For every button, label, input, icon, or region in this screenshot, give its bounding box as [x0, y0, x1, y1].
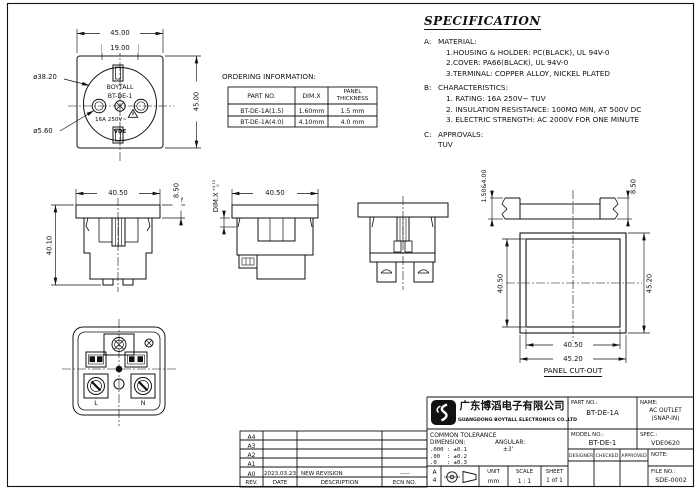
panel-cutout-caption: PANEL CUT-OUT: [544, 366, 603, 377]
dim-panel-thickness: 1.50&4.00: [480, 164, 490, 208]
scale-value: 1 : 1: [508, 477, 541, 486]
side-view-2: [232, 205, 318, 279]
name-value-line2: (SNAP-IN): [637, 415, 694, 424]
spec-item: 1.HOUSING & HOLDER: PC(BLACK), UL 94V-0: [446, 48, 696, 59]
dim-side1-width: 40.50: [97, 189, 139, 198]
company-logo-icon: [431, 400, 456, 425]
ordering-col-dimx: DIM.X: [295, 92, 328, 101]
spec-value: VDE0620: [637, 439, 694, 448]
rev-a0-description: NEW REVISION: [301, 470, 381, 479]
unit-value: mm: [479, 477, 508, 486]
terminal-label-live: L: [90, 399, 102, 408]
dim-cutout-right: 45.20: [646, 263, 655, 303]
specification-block: A:MATERIAL: 1.HOUSING & HOLDER: PC(BLACK…: [424, 37, 696, 155]
spec-item: 3. ELECTRIC STRENGTH: AC 2000V FOR ONE M…: [446, 115, 696, 126]
unit-label: UNIT: [479, 468, 508, 477]
rev-row-label: A0: [240, 470, 263, 479]
rev-row-label: A1: [240, 460, 263, 469]
dim-cutout-left: 40.50: [497, 263, 506, 303]
spec-item: 3.TERMINAL: COPPER ALLOY, NICKEL PLATED: [446, 69, 696, 80]
scale-label: SCALE: [508, 468, 541, 477]
dim-side2-dimx: DIM.X+0.150: [212, 176, 222, 216]
ordering-col-part: PART NO.: [228, 92, 295, 101]
spec-section-heading: MATERIAL:: [438, 37, 477, 46]
note-label: NOTE:: [651, 451, 668, 460]
dim-front-height: 45.00: [192, 82, 201, 122]
rev-row-label: A2: [240, 451, 263, 460]
spec-item: 2.COVER: PA66(BLACK), UL 94V-0: [446, 58, 696, 69]
rev-a0-date: 2023.03.23: [263, 470, 297, 479]
spec-section-label: B:: [424, 83, 438, 94]
dim-side1-height: 40.10: [46, 225, 55, 265]
ordering-row-dimx: 1.60mm: [295, 107, 328, 116]
part-no-value: BT-DE-1A: [568, 409, 637, 418]
vde-mark-icon: VDE: [111, 128, 129, 137]
part-no-label: PART NO.:: [571, 399, 598, 408]
rev-footer-description: DESCRIPTION: [297, 479, 382, 488]
sheet-value: 1 of 1: [541, 477, 568, 486]
ordering-row-dimx: 4.10mm: [295, 118, 328, 127]
rev-row-label: A3: [240, 442, 263, 451]
company-name-en: GUANGDONG BOYTALL ELECTRONICS CO.,LTD: [458, 416, 566, 425]
rev-footer-rev: REV.: [240, 479, 263, 488]
terminal-label-neutral: N: [137, 399, 149, 408]
ordering-col-panel: PANEL THICKNESS: [329, 89, 376, 102]
engineering-drawing-page: 45.00 19.00 45.00 ø38.20 ø5.60 BOYTALL B…: [0, 0, 700, 493]
spec-item: TUV: [438, 140, 696, 151]
ordering-row-panel: 4.0 mm: [328, 118, 377, 127]
socket-model-text: BT-DE-1: [98, 92, 142, 101]
spec-section-label: C:: [424, 130, 438, 141]
dim-cutout-bottom-inner: 40.50: [553, 341, 593, 350]
panel-section-dimensions: [488, 191, 632, 226]
tolerance-angular-value: ±3': [503, 446, 513, 455]
ordering-heading: ORDERING INFORMATION:: [222, 72, 316, 81]
panel-section-view: [502, 198, 618, 219]
dim-panel-flange: 8.50: [630, 166, 639, 206]
dim-front-inner: 19.00: [102, 44, 138, 53]
spec-section-heading: APPROVALS:: [438, 130, 483, 139]
ordering-row-panel: 1.5 mm: [328, 107, 377, 116]
approved-label: APPROVED: [620, 452, 648, 461]
sheet-label: SHEET: [541, 468, 568, 477]
specification-title: SPECIFICATION: [424, 14, 541, 30]
rev-footer-date: DATE: [263, 479, 297, 488]
designer-label: DESIGNER: [568, 452, 594, 461]
checked-label: CHECKED: [594, 452, 620, 461]
dim-cutout-bottom-outer: 45.20: [553, 355, 593, 364]
rev-row-label: A4: [240, 433, 263, 442]
socket-rating-text: 16A 250V~: [92, 116, 130, 125]
spec-item: 2. INSULATION RESISTANCE: 100MΩ MIN, AT …: [446, 105, 696, 116]
model-no-value: BT-DE-1: [568, 439, 637, 448]
file-no-value: SDE-0002: [648, 476, 694, 485]
spec-section-material: A:MATERIAL: 1.HOUSING & HOLDER: PC(BLACK…: [424, 37, 696, 79]
ordering-row-part: BT-DE-1A(4.0): [229, 118, 295, 127]
dim-side2-width: 40.50: [253, 189, 297, 198]
label-body-diameter: ø38.20: [26, 73, 64, 82]
dimx-label: DIM.X: [212, 192, 220, 212]
projection-symbol-icon: [444, 472, 476, 483]
company-name-cn: 广东博滔电子有限公司: [458, 402, 566, 411]
label-hole-diameter: ø5.60: [26, 127, 60, 136]
spec-section-approvals: C:APPROVALS: TUV: [424, 130, 696, 151]
spec-section-characteristics: B:CHARACTERISTICS: 1. RATING: 16A 250V~ …: [424, 83, 696, 125]
spec-section-label: A:: [424, 37, 438, 48]
dimx-tolerance: +0.150: [212, 180, 220, 192]
spec-section-heading: CHARACTERISTICS:: [438, 83, 508, 92]
spec-item: 1. RATING: 16A 250V~ TUV: [446, 94, 696, 105]
dim-front-width: 45.00: [100, 29, 140, 38]
ordering-row-part: BT-DE-1A(1.5): [229, 107, 295, 116]
rev-footer-ecn: ECN NO.: [382, 479, 427, 488]
rev-a0-ecn: -----: [382, 470, 427, 479]
tol-minus: 0: [216, 180, 220, 192]
sheet-size-number: 4: [429, 476, 441, 485]
dim-side1-flange: 8.50: [173, 170, 182, 210]
